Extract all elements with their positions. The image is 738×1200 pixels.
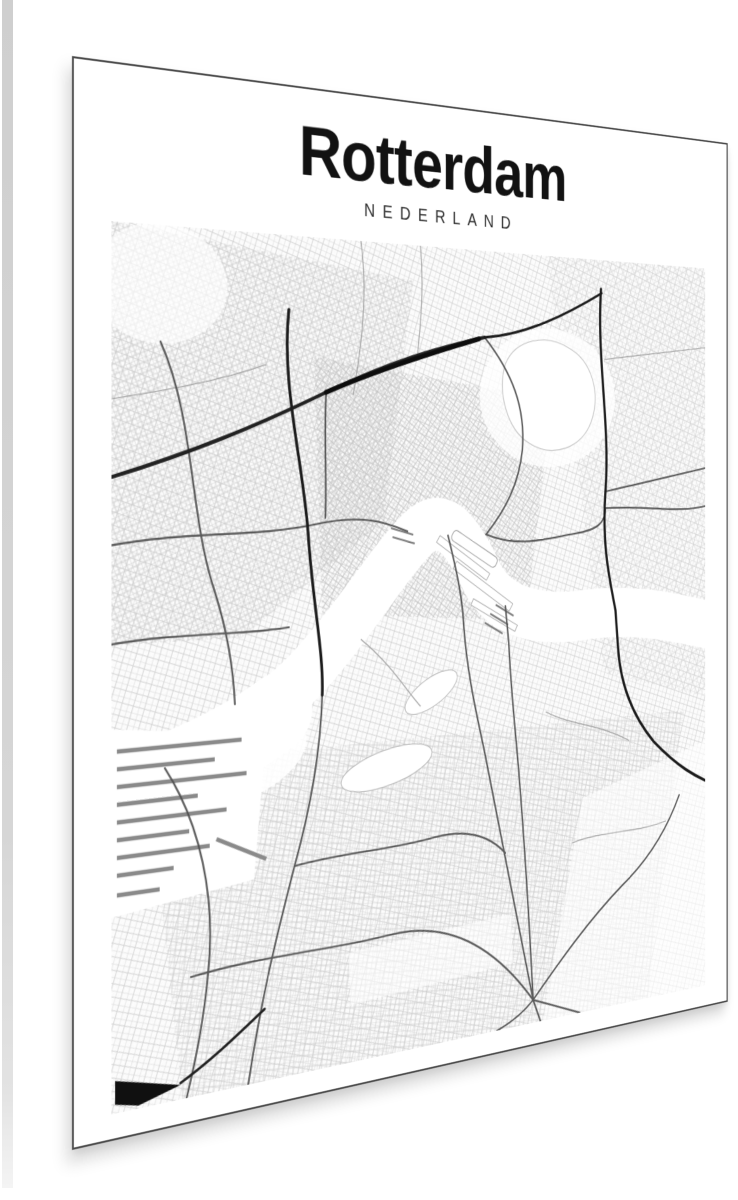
product-photo-stage: Rotterdam NEDERLAND — [0, 0, 738, 1200]
page-edge-strip — [2, 0, 13, 1188]
map-poster: Rotterdam NEDERLAND — [72, 56, 728, 1150]
city-map-graphic — [111, 221, 705, 1114]
rotterdam-street-map — [111, 221, 705, 1114]
